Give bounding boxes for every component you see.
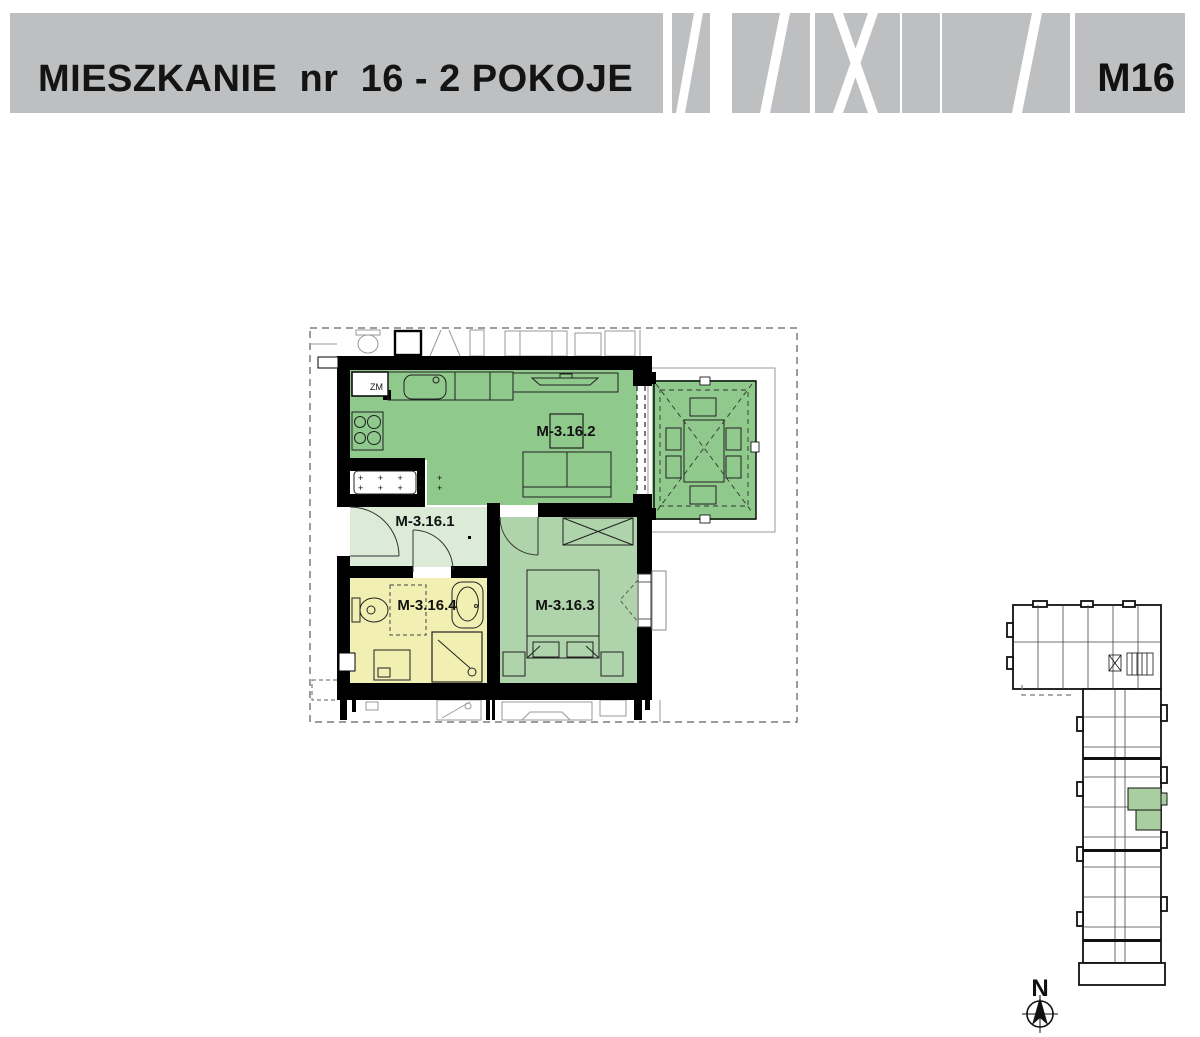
balcony-door-dashed	[637, 386, 645, 494]
boundary-notch-dashed	[312, 680, 338, 700]
unit-code-badge: M16	[1075, 13, 1185, 113]
wall-niche	[339, 653, 355, 671]
decorative-slash-pattern	[672, 13, 1070, 113]
wall-nib	[318, 357, 338, 368]
slash-blocks	[672, 13, 1070, 113]
unit-code-label: M16	[1097, 56, 1185, 113]
meter-cabinet: + + + + + + + + + +	[354, 471, 448, 494]
neighbor-plan-top	[310, 330, 640, 356]
label-bathroom: M-3.16.4	[397, 597, 457, 614]
label-hallway: M-3.16.1	[395, 513, 454, 530]
sink-label: ZM	[370, 382, 383, 392]
header-bar: MIESZKANIE nr 16 - 2 POKOJE	[10, 13, 663, 113]
room-bathroom	[350, 578, 487, 683]
label-bedroom: M-3.16.3	[535, 597, 594, 614]
building-overview-map: N	[1003, 597, 1193, 1037]
hallway-dot	[468, 536, 471, 539]
svg-text:+ + + + +: + + + + +	[358, 473, 448, 483]
page-title: MIESZKANIE nr 16 - 2 POKOJE	[10, 58, 633, 113]
svg-text:+ + + + +: + + + + +	[358, 483, 448, 493]
compass: N	[1022, 975, 1058, 1033]
neighbor-plan-bottom	[340, 700, 660, 722]
label-living-kitchen: M-3.16.2	[536, 423, 595, 440]
floor-plan: + + + + + + + + + + ZM	[300, 315, 810, 735]
floorplan-page: { "header": { "title": "MIESZKANIE nr 16…	[0, 0, 1200, 1036]
balcony	[648, 368, 775, 532]
